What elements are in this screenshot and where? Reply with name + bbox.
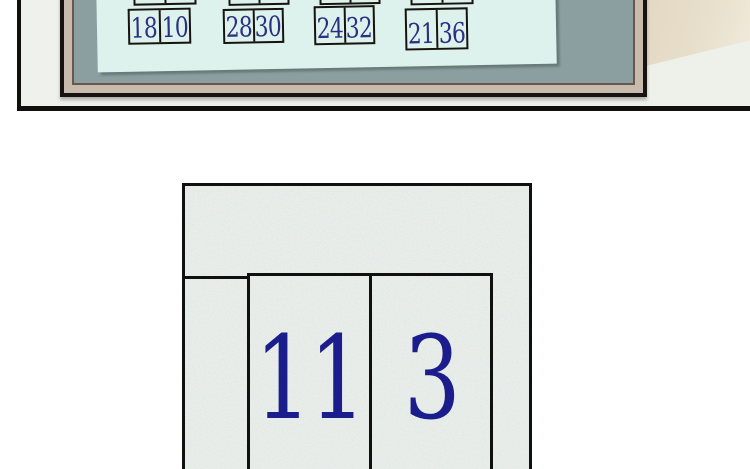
ticket-cell [321, 0, 349, 3]
ticket-number: 18 [131, 14, 158, 42]
ticket-number: 24 [316, 15, 343, 43]
ticket-cell: 24 [316, 8, 344, 44]
ticket-number: 3 [404, 322, 459, 437]
zoomed-ticket: 11 3 [247, 273, 493, 469]
ticket-number: 28 [225, 13, 252, 41]
ticket-cell: 32 [343, 7, 373, 43]
ticket-number: 30 [255, 13, 282, 41]
partial-ticket [133, 0, 196, 6]
ticket-number: 32 [346, 14, 373, 42]
board-illustration-panel: 18 10 28 30 24 32 21 36 [17, 0, 750, 111]
ticket-number: 36 [439, 19, 466, 47]
partial-ticket [228, 0, 289, 6]
ticket-cell: 30 [252, 10, 282, 42]
ticket-cell: 11 [250, 276, 369, 469]
ticket-cell: 3 [369, 276, 490, 469]
ticket-cell [135, 0, 164, 4]
ticket-cell: 36 [435, 9, 466, 48]
number-ticket: 18 10 [128, 8, 192, 45]
partial-ticket [410, 0, 473, 5]
ticket-cell: 21 [407, 10, 436, 49]
ticket-cell [441, 0, 472, 3]
number-ticket: 21 36 [405, 7, 469, 50]
adjacent-cell-top-border [185, 276, 249, 279]
number-ticket: 28 30 [223, 8, 285, 44]
ticket-cell: 28 [225, 10, 253, 42]
ticket-cell [164, 0, 195, 3]
ticket-cell [258, 0, 288, 3]
wall-light-streak [647, 0, 750, 106]
zoomed-ticket-panel: 11 3 [182, 183, 532, 469]
illustration-scene: 18 10 28 30 24 32 21 36 [0, 0, 750, 469]
ticket-sheet: 18 10 28 30 24 32 21 36 [96, 0, 556, 72]
number-ticket: 24 32 [314, 5, 376, 45]
ticket-number: 11 [255, 322, 364, 437]
ticket-cell [349, 0, 379, 3]
ticket-cell [230, 0, 258, 4]
ticket-number: 10 [161, 14, 188, 42]
ticket-cell: 10 [158, 10, 189, 43]
ticket-cell: 18 [130, 10, 159, 43]
ticket-cell [412, 0, 441, 3]
ticket-number: 21 [408, 20, 435, 48]
wall-beige-area [647, 0, 750, 106]
